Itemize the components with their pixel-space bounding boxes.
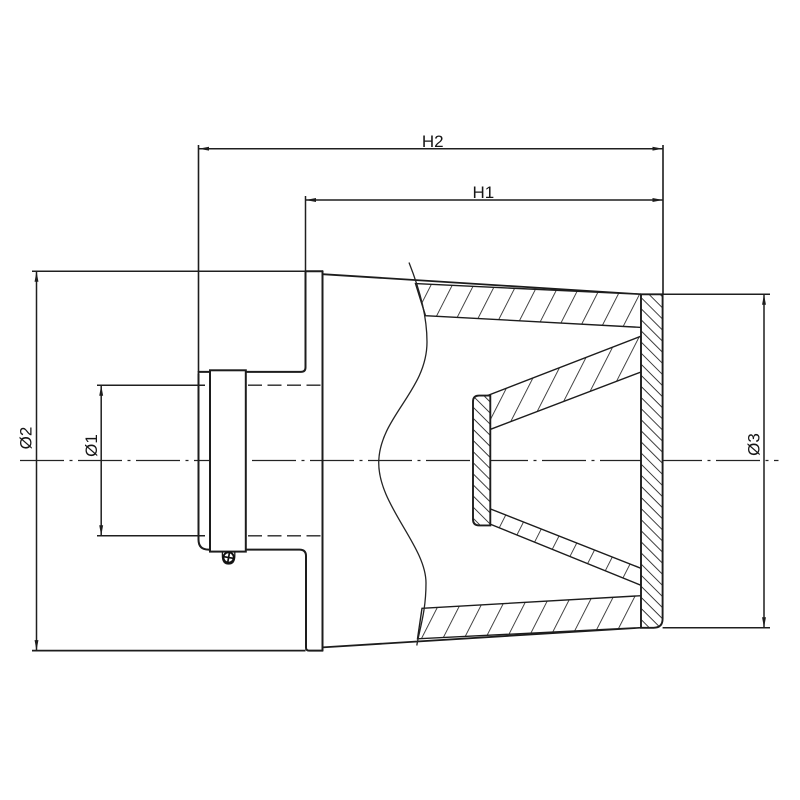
svg-text:H2: H2 bbox=[422, 132, 444, 151]
svg-text:Ø2: Ø2 bbox=[16, 427, 35, 450]
svg-text:H1: H1 bbox=[473, 183, 495, 202]
svg-text:Ø1: Ø1 bbox=[82, 434, 101, 457]
svg-text:Ø3: Ø3 bbox=[744, 433, 763, 456]
